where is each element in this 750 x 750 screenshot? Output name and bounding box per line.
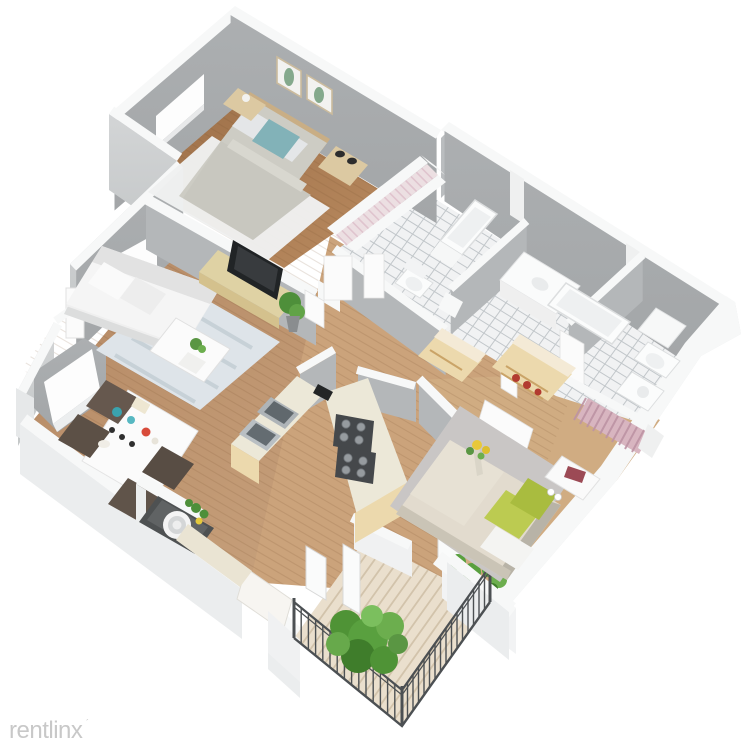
- svg-text:rentlinx: rentlinx: [9, 717, 83, 744]
- svg-text:´: ´: [86, 718, 89, 728]
